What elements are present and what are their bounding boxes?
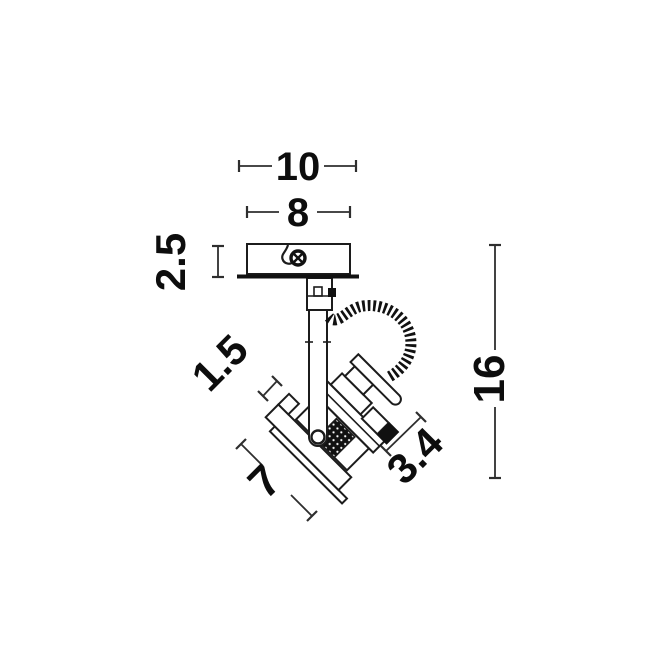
spotlight-dimension-diagram: 10 8 2.5 16 1.5 7 [0,0,650,650]
dimension-label-2-5: 2.5 [147,233,194,291]
dimension-arm-thickness: 1.5 [182,325,282,401]
dimension-base-height: 2.5 [147,233,224,291]
dimension-label-16: 16 [465,355,514,404]
dimension-label-1-5: 1.5 [182,325,257,400]
dimension-base-width: 8 [247,191,350,235]
stem-joint-clamp [328,288,336,297]
dimension-label-8: 8 [287,191,309,235]
dimension-overall-height: 16 [465,245,514,478]
pivot-screw [312,431,325,444]
ceiling-canopy [237,244,359,277]
dimension-overall-width: 10 [239,145,356,189]
dimension-label-10: 10 [276,145,321,189]
dimension-label-7: 7 [239,456,291,508]
technical-drawing-canvas: 10 8 2.5 16 1.5 7 [0,0,650,650]
stem-bar [309,308,327,446]
